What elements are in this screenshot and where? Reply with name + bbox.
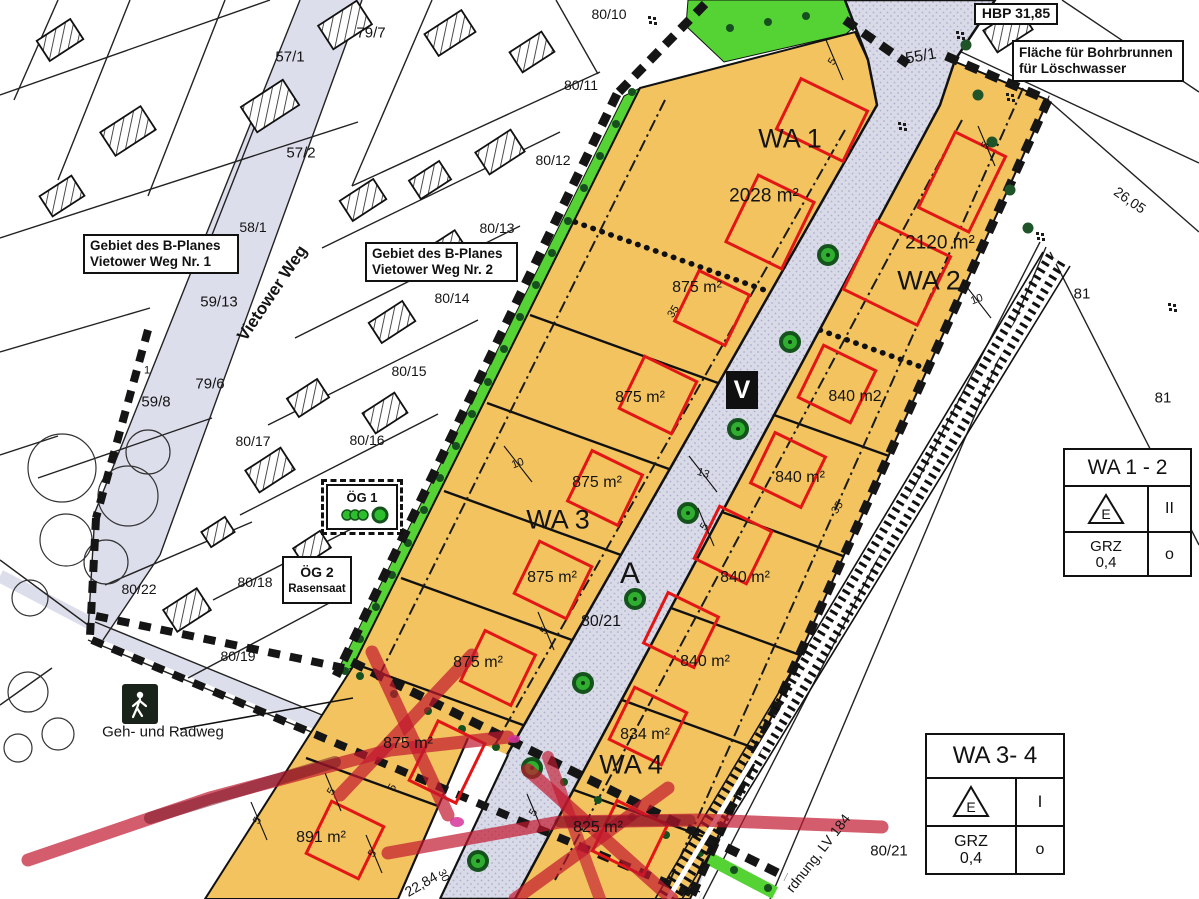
parcel-79-7: 79/7	[356, 26, 385, 41]
legend-wa12-housetype-cell: E	[1065, 487, 1149, 531]
legend-wa34-title: WA 3- 4	[927, 735, 1063, 779]
gebiet-bplan-1-box: Gebiet des B-Planes Vietower Weg Nr. 1	[83, 234, 239, 274]
area-875-2: 875 m²	[615, 390, 665, 406]
parcel-57-2: 57/2	[286, 146, 315, 161]
dim-22-84: 22,84	[402, 869, 439, 899]
dim-10-a: 10	[510, 457, 525, 472]
svg-text:E: E	[966, 799, 975, 815]
legend-wa34-grz-value: 0,4	[960, 851, 982, 868]
parcel-80-11: 80/11	[564, 78, 598, 92]
parcel-79-6: 79/6	[195, 377, 224, 392]
dim-10-b: 10	[969, 293, 984, 308]
area-875-1: 875 m²	[672, 280, 722, 296]
legend-wa34-grz-label: GRZ	[954, 834, 988, 851]
dim-35-b: 35	[830, 500, 846, 516]
area-2120: 2120 m²	[905, 234, 975, 253]
area-834: 834 m²	[620, 727, 670, 743]
og1-box: ÖG 1	[326, 484, 398, 530]
gebiet-bplan-2-box: Gebiet des B-Planes Vietower Weg Nr. 2	[365, 242, 518, 282]
parcel-80-21-road: 80/21	[581, 614, 621, 630]
dim-13: 13	[695, 467, 710, 481]
legend-wa34-housetype-cell: E	[927, 779, 1017, 825]
einzelhaus-symbol: E	[951, 783, 991, 821]
parcel-59-8: 59/8	[141, 395, 170, 410]
parcel-80-21-br: 80/21	[870, 844, 908, 859]
parcel-80-10: 80/10	[591, 7, 626, 21]
einzelhaus-symbol: E	[1086, 491, 1126, 527]
area-875-6: 875 m²	[383, 736, 433, 752]
legend-wa12-floors: II	[1165, 501, 1174, 518]
gebiet1-line1: Gebiet des B-Planes	[90, 238, 232, 254]
legend-wa12-grz-value: 0,4	[1096, 555, 1117, 571]
area-840-3: 840 m²	[720, 570, 770, 586]
parcel-81-a: 81	[1074, 287, 1091, 302]
parcel-55-1: 55/1	[904, 46, 937, 67]
og2-sublabel: Rasensaat	[288, 582, 346, 596]
road-point-a: A	[620, 559, 640, 589]
bebauungsplan-map: 80/1079/75457/180/1155/157/280/1258/180/…	[0, 0, 1199, 899]
parcel-80-17: 80/17	[235, 434, 270, 448]
og1-label: ÖG 1	[346, 490, 377, 506]
hbp-label: HBP 31,85	[982, 5, 1050, 22]
dim-35-a: 35	[666, 304, 682, 320]
area-840-2: 840 m²	[775, 470, 825, 486]
legend-wa34-open: o	[1036, 842, 1045, 859]
bohrbrunnen-box: Fläche für Bohrbrunnen für Löschwasser	[1012, 40, 1184, 82]
parcel-80-18: 80/18	[237, 575, 272, 589]
legend-wa12-floors-cell: II	[1149, 487, 1190, 531]
og2-box: ÖG 2 Rasensaat	[282, 556, 352, 604]
dim-5-f: 5	[387, 782, 400, 793]
legend-wa34-open-cell: o	[1017, 827, 1063, 874]
hbp-box: HBP 31,85	[974, 3, 1058, 25]
parcel-57-1: 57/1	[275, 50, 304, 65]
og2-label: ÖG 2	[300, 564, 333, 581]
parcel-80-12: 80/12	[535, 153, 570, 167]
legend-wa12-open-cell: o	[1149, 533, 1190, 577]
street-vietower-weg: Vietower Weg	[234, 242, 310, 343]
og1-tree-symbols	[331, 506, 393, 524]
parcel-59-13: 59/13	[200, 295, 238, 310]
legend-wa12-grz-label: GRZ	[1090, 539, 1122, 555]
bohrbrunnen-line2: für Löschwasser	[1019, 61, 1177, 77]
dim-5-e: 5	[326, 786, 339, 797]
gebiet2-line1: Gebiet des B-Planes	[372, 246, 511, 262]
area-840-1: 840 m2	[828, 389, 881, 405]
dim-5-c: 5	[699, 521, 712, 532]
v-sign-letter: V	[734, 376, 751, 405]
legend-wa12-open: o	[1165, 547, 1174, 564]
dim-5-i: 5	[528, 807, 541, 818]
area-875-4: 875 m²	[527, 570, 577, 586]
legend-wa34-floors-cell: I	[1017, 779, 1063, 825]
zone-wa3: WA 3	[526, 507, 590, 534]
area-875-3: 875 m²	[572, 475, 622, 491]
parcel-1: 1	[144, 366, 150, 377]
legend-wa34-grz-cell: GRZ 0,4	[927, 827, 1017, 874]
dim-5-g: 5	[252, 815, 265, 826]
dim-5-a: 5	[827, 56, 840, 67]
legend-wa34-title-text: WA 3- 4	[953, 742, 1037, 770]
v-sign: V	[726, 371, 758, 409]
parcel-81-b: 81	[1155, 391, 1172, 406]
bohrbrunnen-line1: Fläche für Bohrbrunnen	[1019, 45, 1177, 61]
legend-wa12: WA 1 - 2 E II GRZ 0,4 o	[1063, 448, 1192, 577]
parcel-80-19: 80/19	[220, 649, 255, 663]
parcel-80-15: 80/15	[391, 364, 426, 378]
gebiet2-line2: Vietower Weg Nr. 2	[372, 262, 511, 278]
parcel-80-13: 80/13	[479, 221, 514, 235]
parcel-58-1: 58/1	[239, 220, 266, 234]
parcel-80-14: 80/14	[434, 291, 469, 305]
area-875-5: 875 m²	[453, 655, 503, 671]
dim-5-h: 5	[367, 848, 380, 859]
legend-wa12-grz-cell: GRZ 0,4	[1065, 533, 1149, 577]
area-840-4: 840 m²	[680, 654, 730, 670]
legend-wa34: WA 3- 4 E I GRZ 0,4 o	[925, 733, 1065, 875]
zone-wa4: WA 4	[599, 752, 663, 779]
legend-wa34-floors: I	[1038, 793, 1043, 811]
label-lv-184: rdnung, LV 184	[783, 811, 852, 894]
dim-5-b: 5	[980, 140, 993, 151]
dim-26-05: 26,05	[1112, 184, 1149, 216]
svg-text:E: E	[1101, 506, 1110, 522]
label-geh-und-radweg: Geh- und Radweg	[102, 725, 224, 740]
zone-wa2: WA 2	[897, 268, 961, 295]
legend-wa12-title-text: WA 1 - 2	[1088, 456, 1168, 480]
legend-wa12-title: WA 1 - 2	[1065, 450, 1190, 487]
area-825: 825 m²	[573, 820, 623, 836]
dim-5-d: 5	[539, 625, 552, 636]
zone-wa1: WA 1	[758, 126, 822, 153]
parcel-80-16: 80/16	[349, 433, 384, 447]
parcel-80-22: 80/22	[121, 582, 156, 596]
area-2028: 2028 m²	[729, 187, 799, 206]
gebiet1-line2: Vietower Weg Nr. 1	[90, 254, 232, 270]
area-891: 891 m²	[296, 830, 346, 846]
